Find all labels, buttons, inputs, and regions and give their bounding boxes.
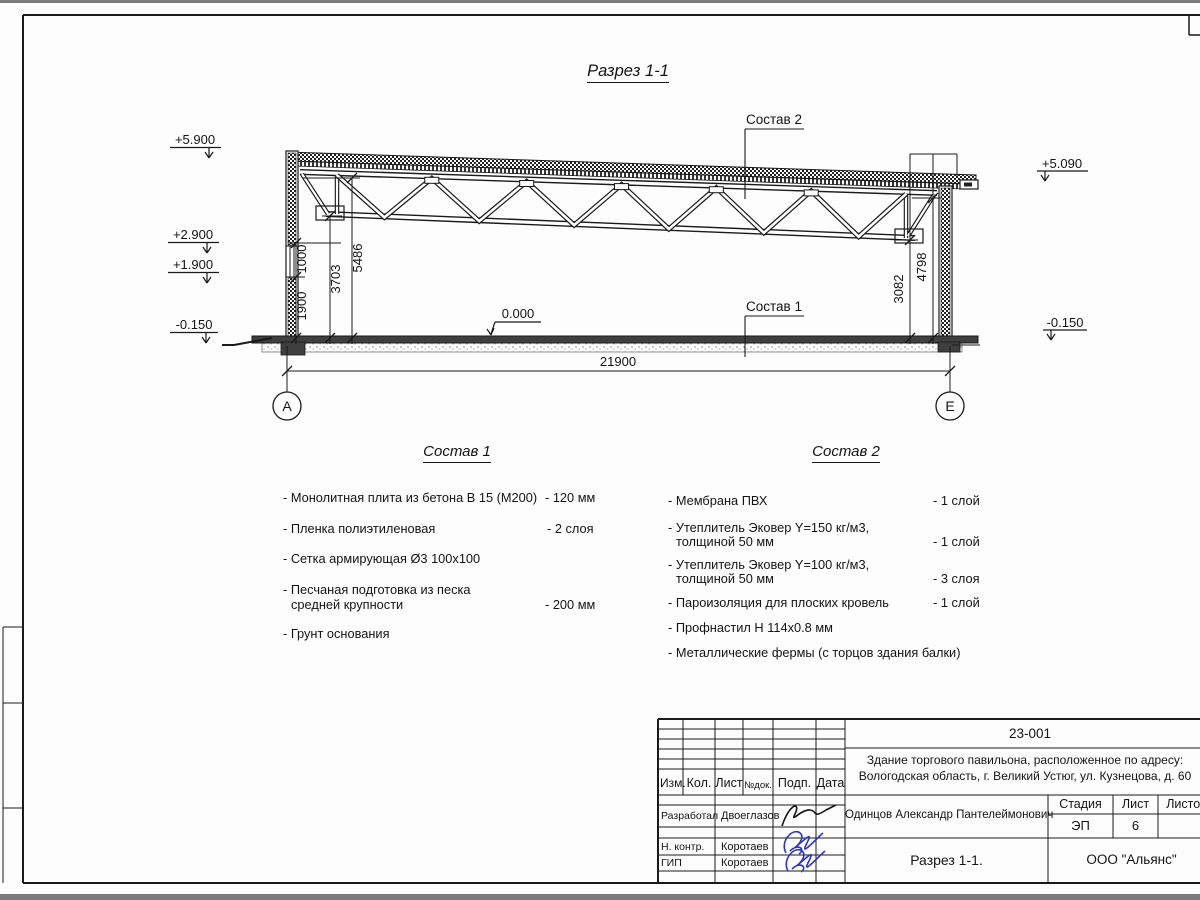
list-item: - Профнастил Н 114х0.8 мм: [668, 620, 833, 635]
right-wall-hatch: [941, 188, 950, 336]
titleblock-project-line1: Здание торгового павильона, расположенно…: [845, 753, 1200, 767]
frame-margin-cells: [3, 627, 23, 883]
titleblock-sheet-value: 6: [1113, 818, 1158, 833]
signature-developer: [782, 805, 836, 826]
titleblock-sheets-label: Листов: [1158, 797, 1200, 811]
titleblock-name-gip: Коротаев: [721, 857, 769, 869]
foundation-right: [938, 342, 960, 352]
list-item: - Песчаная подготовка из песка: [283, 582, 471, 597]
list-item: - Утеплитель Эковер Y=150 кг/м3,: [668, 520, 869, 535]
signature-ncontrol: [784, 832, 823, 854]
titleblock-stage-value: ЭП: [1048, 818, 1113, 833]
elevation-left-3: +1.900: [173, 257, 213, 272]
list-item-value: - 1 слой: [933, 534, 980, 549]
list-item-line2: толщиной 50 мм: [676, 571, 774, 586]
titleblock-doc-number: 23-001: [845, 726, 1200, 741]
list-item: - Пароизоляция для плоских кровель: [668, 595, 889, 610]
callout-sostav2-label: Состав 2: [746, 112, 802, 127]
titleblock-col-kol: Кол.: [683, 776, 715, 790]
elevation-zero: 0.000: [502, 306, 535, 321]
dim-1900: 1900: [294, 292, 309, 321]
list-item: - Мембрана ПВХ: [668, 493, 767, 508]
titleblock-col-list: Лист: [715, 776, 743, 790]
dim-3703: 3703: [328, 265, 343, 294]
list-item-value: - 2 слоя: [547, 521, 594, 536]
titleblock-name-developer: Двоеглазов: [721, 810, 779, 822]
dim-1000: 1000: [294, 245, 309, 274]
axis-label-a: А: [282, 398, 292, 414]
elevation-left-2: +2.900: [173, 227, 213, 242]
titleblock-col-data: Дата: [816, 776, 845, 790]
left-wall-hatch-top: [288, 153, 296, 245]
dim-5486: 5486: [350, 244, 365, 273]
list-item-value: - 3 слоя: [933, 571, 980, 586]
drawing-sheet: +5.900 +2.900 +1.900 -0.150 +5.090 -0.15…: [0, 0, 1200, 900]
elevation-left-1: +5.900: [175, 132, 215, 147]
titleblock-project-line2: Вологодская область, г. Великий Устюг, у…: [845, 769, 1200, 783]
callout-sostav1-label: Состав 1: [746, 299, 802, 314]
titleblock-col-izm: Изм.: [660, 776, 683, 790]
list-item-value: - 120 мм: [545, 490, 595, 505]
floor-slab: [252, 336, 978, 343]
list-item: - Монолитная плита из бетона В 15 (М200): [283, 490, 537, 505]
list-item-value: - 1 слой: [933, 493, 980, 508]
titleblock-sheet-label: Лист: [1113, 797, 1158, 811]
titleblock-role-ncontrol: Н. контр.: [661, 841, 704, 853]
dim-3082: 3082: [891, 275, 906, 304]
list-item: - Грунт основания: [283, 626, 390, 641]
signature-gip: [786, 850, 825, 872]
titleblock-col-ndok: №док.: [743, 780, 773, 791]
titleblock-company: ООО "Альянс": [1048, 852, 1200, 867]
titleblock-approver: Одинцов Александр Пантелеймонович: [845, 809, 1048, 821]
titleblock-col-podp: Подп.: [773, 776, 816, 790]
list-item: - Пленка полиэтиленовая: [283, 521, 435, 536]
list-item-value: - 200 мм: [545, 597, 595, 612]
list-item: - Утеплитель Эковер Y=100 кг/м3,: [668, 557, 869, 572]
sand-bed: [262, 343, 962, 352]
titleblock-stage-label: Стадия: [1048, 797, 1113, 811]
titleblock-role-developer: Разработал: [661, 810, 718, 822]
list-item-line2: средней крупности: [291, 597, 403, 612]
elevation-right-1: +5.090: [1042, 156, 1082, 171]
roof-edge-cap-core: [964, 183, 972, 187]
titleblock-role-gip: ГИП: [661, 857, 682, 869]
dim-4798: 4798: [914, 253, 929, 282]
titleblock-drawing-name: Разрез 1-1.: [845, 852, 1048, 868]
dim-21900: 21900: [600, 354, 636, 369]
sostav2-heading: Состав 2: [789, 443, 903, 460]
callout-leaders: [745, 129, 804, 357]
elevation-right-2: -0.150: [1047, 315, 1084, 330]
list-item-line2: толщиной 50 мм: [676, 534, 774, 549]
titleblock-name-ncontrol: Коротаев: [721, 841, 769, 853]
list-item: - Металлические фермы (с торцов здания б…: [668, 645, 960, 660]
foundation-left: [281, 342, 305, 355]
frame-corner-box: [1189, 15, 1200, 35]
page-title: Разрез 1-1: [558, 62, 698, 81]
list-item-value: - 1 слой: [933, 595, 980, 610]
list-item: - Сетка армирующая Ø3 100х100: [283, 551, 480, 566]
sostav1-heading: Состав 1: [400, 443, 514, 460]
elevation-left-4: -0.150: [176, 317, 213, 332]
axis-label-e: Е: [945, 398, 954, 414]
